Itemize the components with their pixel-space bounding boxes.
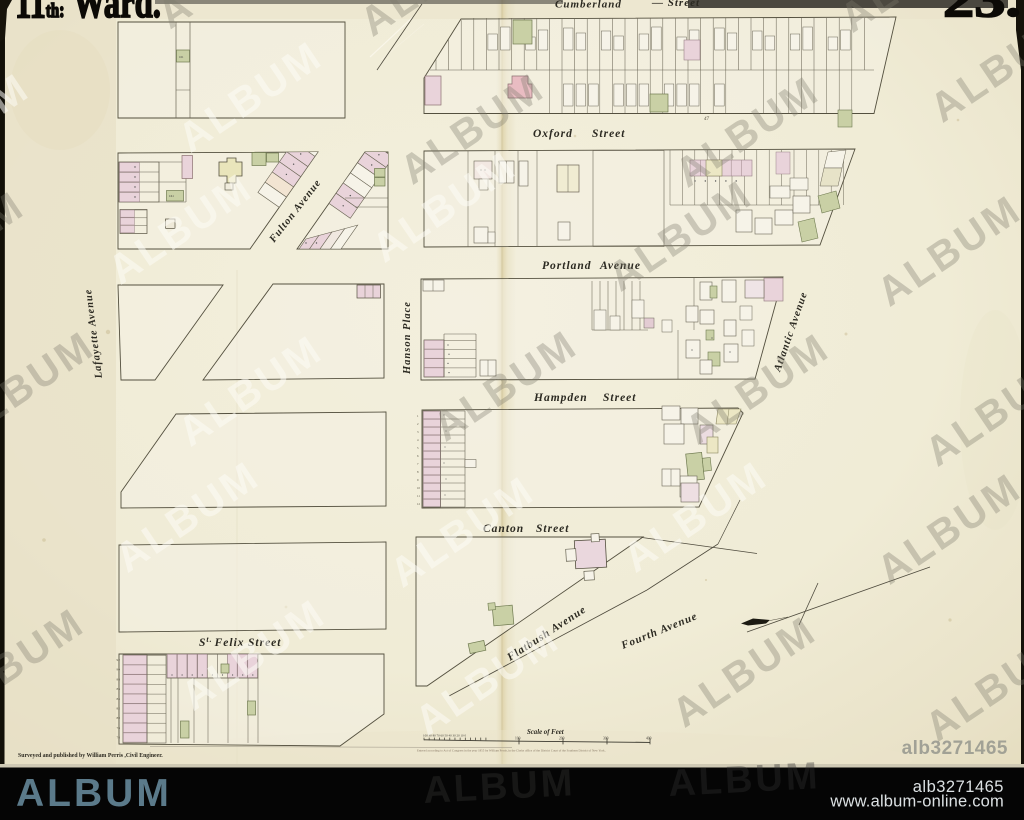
svg-text:Street: Street (603, 392, 636, 404)
svg-text:80: 80 (117, 716, 121, 720)
svg-text:100: 100 (515, 737, 521, 741)
svg-text:Hanson Place: Hanson Place (402, 301, 413, 375)
svg-text:Street: Street (536, 523, 569, 535)
svg-text:Scale of Feet: Scale of Feet (527, 729, 565, 736)
svg-text:400: 400 (646, 737, 652, 741)
svg-text:11th: Ward.: 11th: Ward. (15, 0, 161, 27)
svg-text:78: 78 (117, 726, 121, 730)
svg-text:12: 12 (417, 502, 421, 506)
svg-text:Cumberland: Cumberland (555, 0, 622, 11)
svg-text:— Street: — Street (651, 0, 700, 9)
svg-text:11: 11 (417, 494, 420, 498)
svg-text:200: 200 (559, 737, 565, 741)
svg-text:82: 82 (117, 707, 121, 711)
svg-text:www.album-online.com: www.album-online.com (829, 793, 1004, 811)
svg-text:ALBUM: ALBUM (16, 772, 172, 815)
svg-text:300: 300 (603, 737, 609, 741)
svg-text:47: 47 (704, 117, 710, 122)
svg-text:Surveyed and published by Will: Surveyed and published by William Perris… (18, 753, 163, 759)
svg-text:ALBUM: ALBUM (667, 755, 821, 805)
svg-text:Street: Street (592, 128, 625, 140)
svg-text:90: 90 (117, 668, 121, 672)
svg-text:Portland: Portland (542, 260, 592, 272)
svg-text:86: 86 (117, 687, 121, 691)
svg-text:ALBUM: ALBUM (422, 762, 576, 812)
svg-text:76: 76 (117, 736, 121, 740)
svg-text:alb3271465: alb3271465 (902, 738, 1008, 759)
svg-text:Oxford: Oxford (533, 128, 573, 140)
svg-text:161: 161 (179, 55, 184, 59)
svg-text:161: 161 (169, 194, 174, 198)
svg-text:10: 10 (417, 486, 421, 490)
svg-text:23.: 23. (943, 0, 1021, 27)
svg-text:88: 88 (117, 677, 121, 681)
svg-text:92: 92 (117, 658, 121, 662)
svg-text:Hampden: Hampden (533, 392, 588, 404)
svg-text:84: 84 (117, 697, 121, 701)
